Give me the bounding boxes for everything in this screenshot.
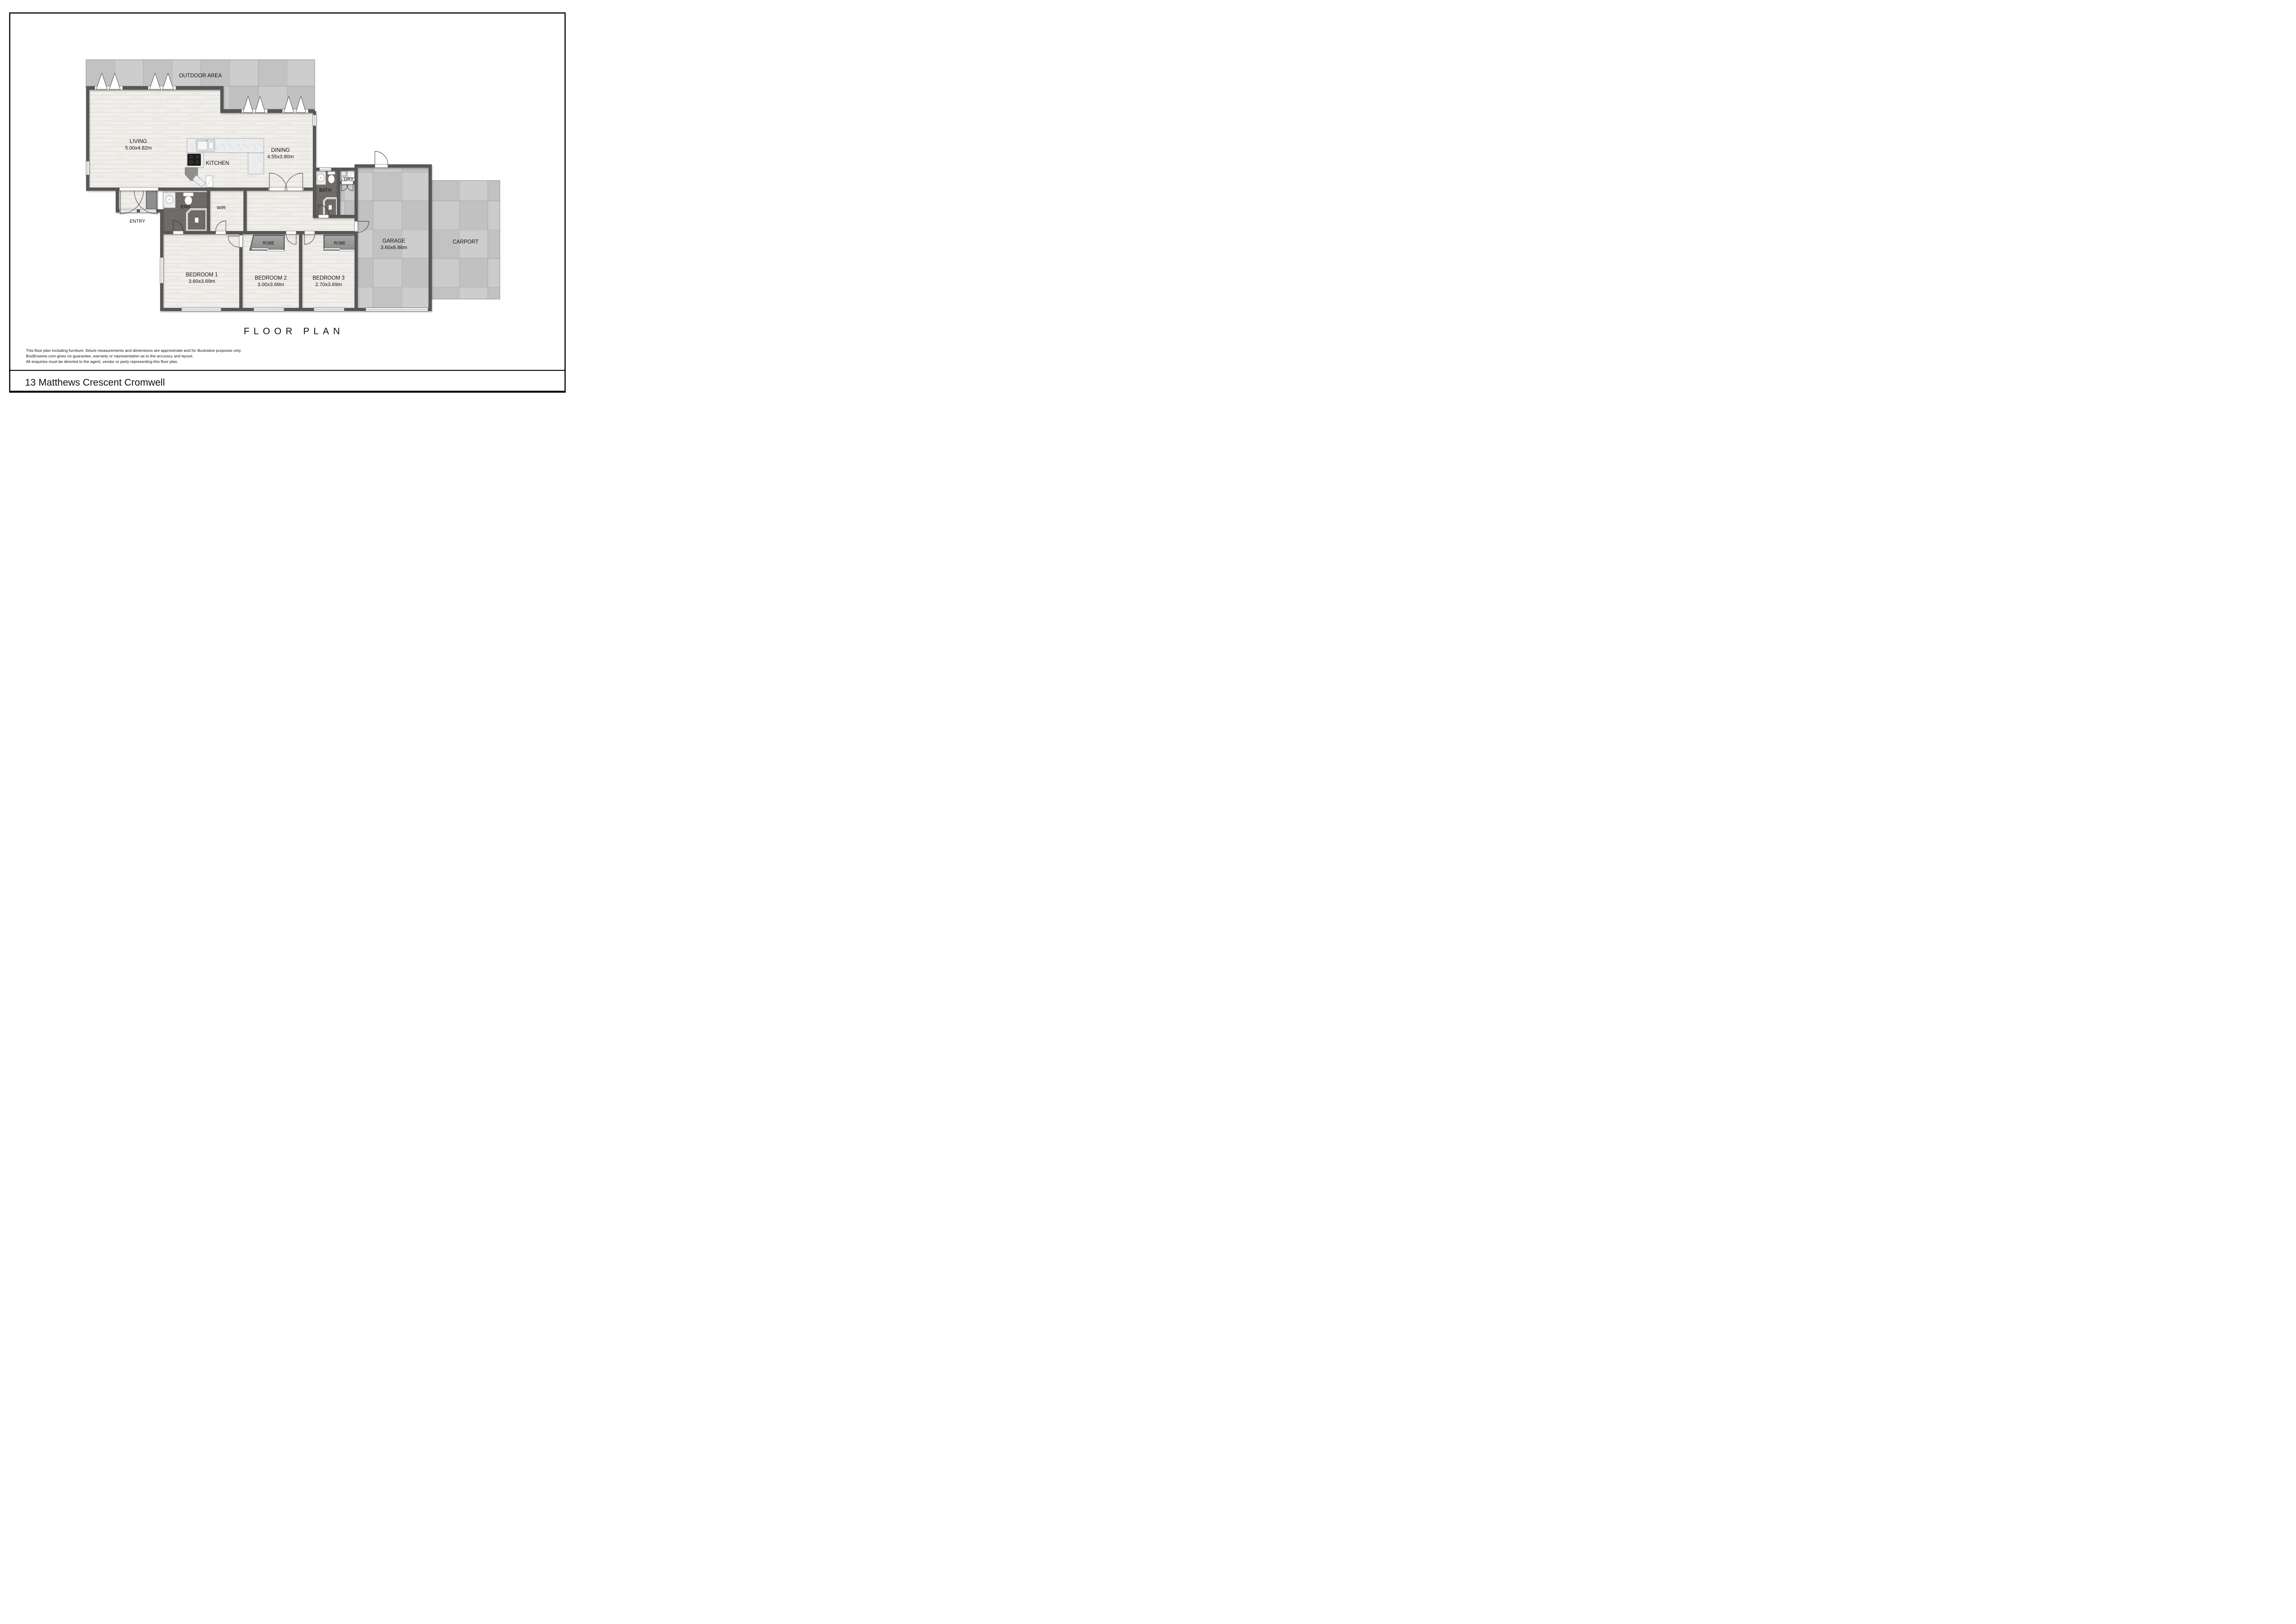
laundry-label: L’DRY — [341, 177, 354, 182]
robe2-label: ROBE — [334, 241, 346, 245]
kitchen-label: KITCHEN — [206, 161, 229, 166]
disclaimer-line-2: BoxBrownie.com gives no guarantee, warra… — [26, 354, 193, 358]
bedroom3-label: BEDROOM 3 — [312, 275, 344, 281]
wir-label: WIR — [217, 206, 225, 211]
dining-label: DINING — [271, 148, 290, 153]
entry-label: ENTRY — [130, 219, 145, 224]
cooktop-icon — [187, 154, 201, 166]
living-label: LIVING — [130, 139, 147, 144]
kitchen-counter-right — [248, 153, 264, 174]
garage-dims: 3.60x6.86m — [380, 245, 407, 250]
disclaimer-line-1: This floor plan including furniture, fix… — [26, 348, 242, 353]
floor-plan-page: OUTDOOR AREA LIVING 5.00x4.82m KITCHEN D… — [0, 0, 574, 406]
bedroom3-dims: 2.70x3.69m — [315, 282, 342, 287]
bedroom2-dims: 3.00x3.69m — [257, 282, 284, 287]
footer-address: 13 Matthews Crescent Cromwell — [25, 377, 165, 388]
entry-cupboard — [146, 191, 156, 209]
laundry-alcove-floor — [340, 184, 355, 215]
bedroom1-dims: 3.60x3.69m — [188, 279, 215, 284]
bath-label: BATH — [319, 188, 331, 193]
ens-toilet-icon — [183, 193, 193, 196]
bedroom2-label: BEDROOM 2 — [255, 275, 286, 281]
living-dims: 5.00x4.82m — [125, 145, 151, 151]
disclaimer-line-3: All enquiries must be directed to the ag… — [26, 359, 178, 364]
floor-plan-title: FLOOR PLAN — [244, 326, 344, 337]
outdoor-area-label: OUTDOOR AREA — [179, 73, 222, 79]
robe1-label: ROBE — [262, 241, 274, 245]
dining-dims: 4.55x3.80m — [267, 154, 293, 160]
carport-label: CARPORT — [453, 239, 479, 245]
garage-label: GARAGE — [382, 238, 405, 244]
floor-plan-svg: OUTDOOR AREA LIVING 5.00x4.82m KITCHEN D… — [0, 0, 574, 406]
bedroom1-label: BEDROOM 1 — [186, 272, 218, 278]
ens-label: ENS — [181, 205, 191, 210]
bath-toilet-icon — [328, 171, 335, 175]
